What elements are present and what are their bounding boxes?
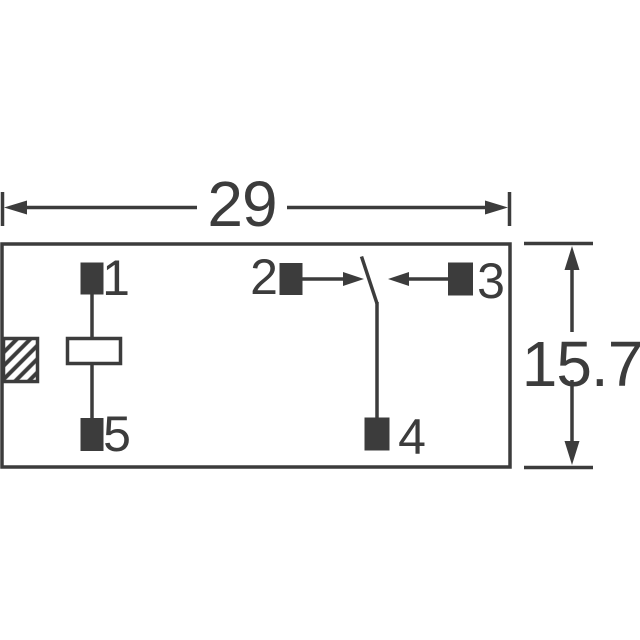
pin4-label: 4: [398, 412, 426, 462]
pin3-pad: [448, 263, 473, 296]
relay-schematic-drawing: 29 15.7 1 2 3 4 5: [0, 0, 640, 640]
pin5-label: 5: [103, 409, 131, 459]
width-arrowhead-right-icon: [485, 201, 508, 215]
schematic-svg: [0, 0, 640, 640]
pin2-pad: [280, 263, 303, 295]
pin3-label: 3: [477, 256, 505, 306]
pin2-label: 2: [250, 252, 278, 302]
width-arrowhead-left-icon: [4, 201, 27, 215]
pin1-label: 1: [102, 253, 130, 303]
height-dimension-label: 15.7: [522, 332, 640, 396]
pin4-pad: [365, 418, 390, 451]
height-arrowhead-up-icon: [565, 246, 580, 270]
width-dimension-label: 29: [207, 172, 276, 236]
coil-symbol: [68, 339, 121, 364]
pin5-pad: [81, 418, 104, 451]
hatched-orientation-mark: [4, 339, 38, 382]
pin1-pad: [81, 263, 104, 295]
height-arrowhead-down-icon: [565, 441, 580, 465]
